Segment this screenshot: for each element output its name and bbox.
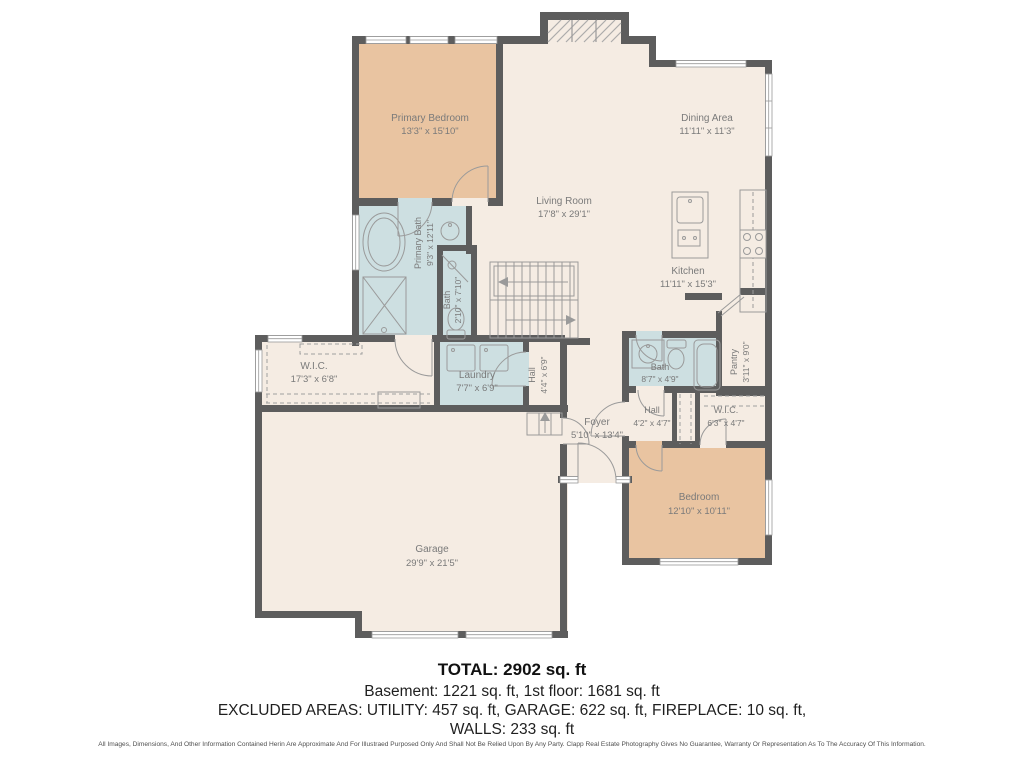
room-name: Foyer: [584, 417, 610, 428]
room-name: Bedroom: [679, 492, 720, 503]
room-dims: 9'3" x 12'11": [425, 220, 435, 266]
room-name: Pantry: [729, 348, 739, 375]
room-dims: 4'2" x 4'7": [633, 418, 670, 428]
room-name: Garage: [415, 544, 449, 555]
area-summary: TOTAL: 2902 sq. ft Basement: 1221 sq. ft…: [0, 660, 1024, 740]
room-dims: 5'10" x 13'4": [571, 430, 623, 441]
room-name: Living Room: [536, 196, 592, 207]
room-name: W.I.C.: [714, 405, 739, 415]
room-name: W.I.C.: [300, 361, 327, 372]
room-dims: 17'3" x 6'8": [291, 374, 338, 385]
room-dims: 11'11" x 15'3": [660, 279, 716, 290]
summary-line-excluded: EXCLUDED AREAS: UTILITY: 457 sq. ft, GAR…: [0, 702, 1024, 720]
floor-plan-page: Primary Bedroom 13'3" x 15'10" Dining Ar…: [0, 0, 1024, 768]
room-name: Primary Bedroom: [391, 113, 469, 124]
room-dims: 8'7" x 4'9": [641, 374, 678, 384]
room-dims: 4'4" x 6'9": [539, 356, 549, 393]
room-name: Primary Bath: [413, 217, 423, 269]
total-area: TOTAL: 2902 sq. ft: [0, 660, 1024, 680]
room-bedroom: [627, 443, 767, 563]
room-name: Bath: [442, 291, 452, 310]
room-name: Bath: [651, 362, 670, 372]
room-name: Hall: [527, 367, 537, 383]
room-dims: 12'10" x 10'11": [668, 506, 730, 517]
room-dims: 13'3" x 15'10": [401, 126, 458, 137]
room-name: Hall: [644, 405, 660, 415]
room-dims: 7'7" x 6'9": [456, 383, 498, 394]
disclaimer-text: All Images, Dimensions, And Other Inform…: [0, 741, 1024, 748]
room-foyer: [560, 338, 632, 483]
room-dims: 2'10" x 7'10": [453, 277, 463, 324]
room-dims: 3'11" x 9'0": [741, 341, 751, 382]
room-name: Dining Area: [681, 113, 733, 124]
summary-line-walls: WALLS: 233 sq. ft: [0, 721, 1024, 739]
room-dims: 11'11" x 11'3": [679, 126, 734, 137]
room-dims: 29'9" x 21'5": [406, 558, 458, 569]
room-garage: [258, 408, 568, 638]
room-dims: 17'8" x 29'1": [538, 209, 590, 220]
summary-line-basement: Basement: 1221 sq. ft, 1st floor: 1681 s…: [0, 683, 1024, 701]
room-dims: 6'3" x 4'7": [707, 418, 744, 428]
room-name: Kitchen: [671, 266, 704, 277]
room-name: Laundry: [459, 370, 495, 381]
floor-plan: Primary Bedroom 13'3" x 15'10" Dining Ar…: [0, 0, 1024, 768]
